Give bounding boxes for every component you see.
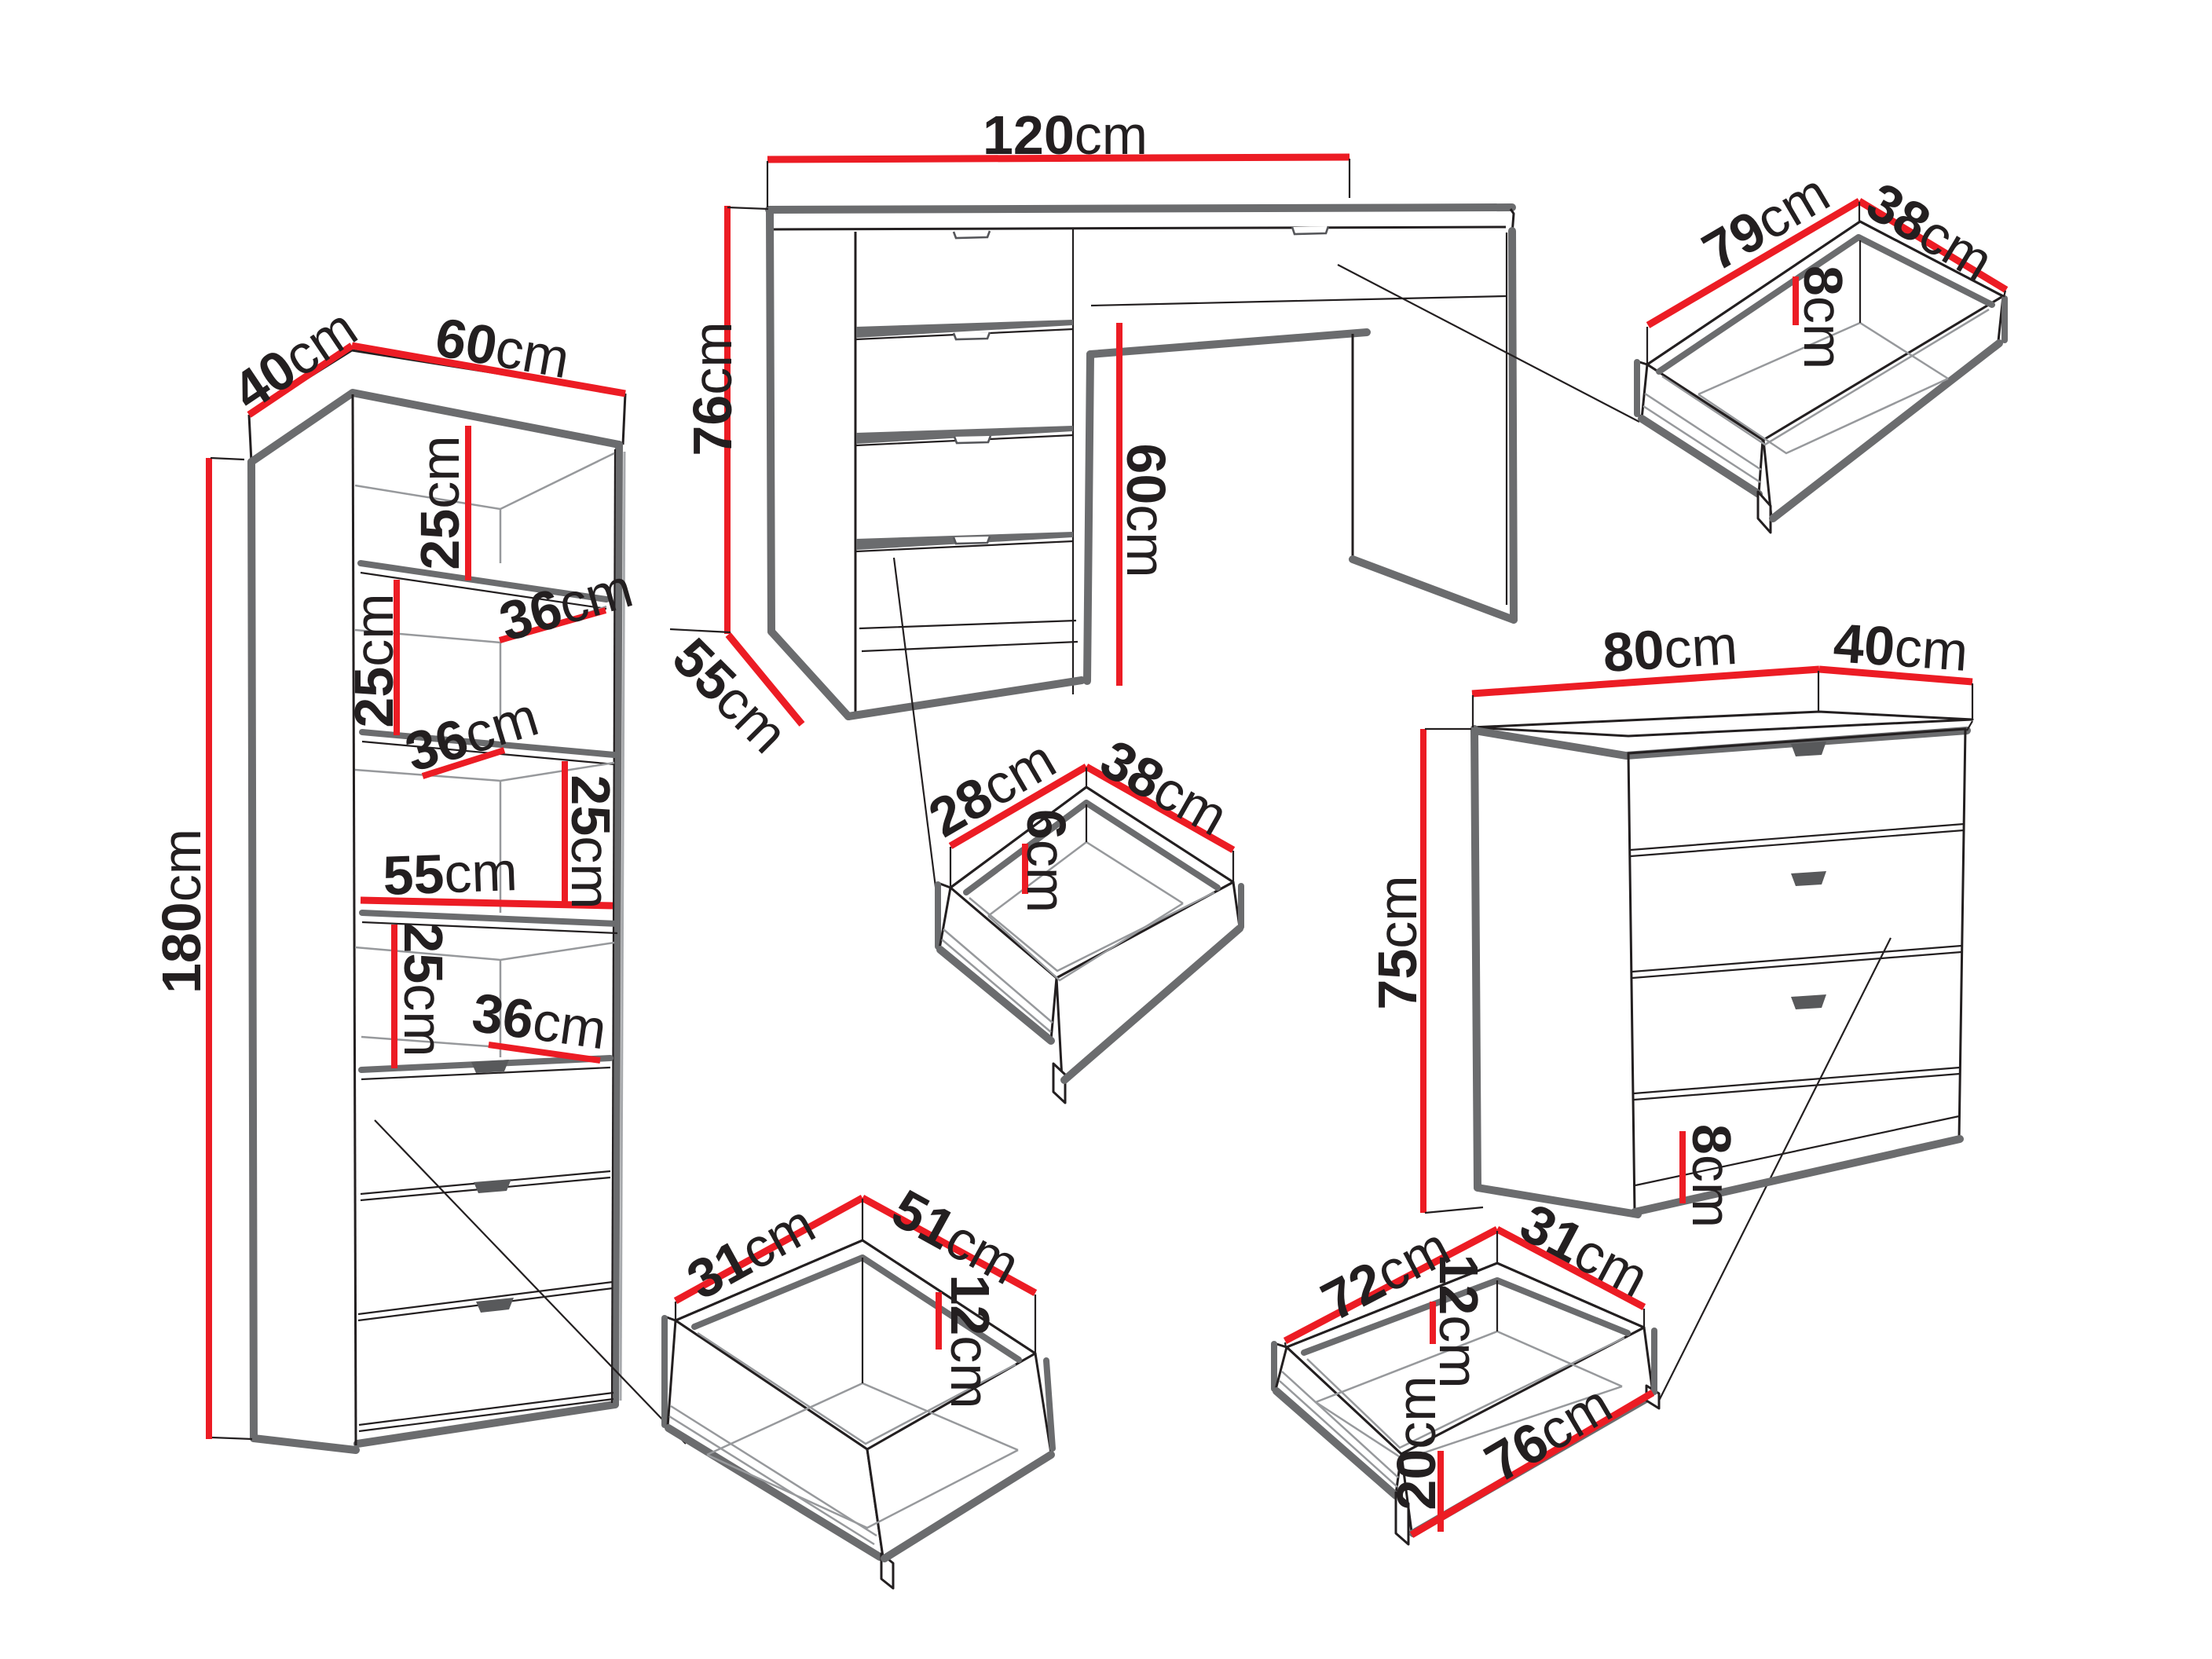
svg-text:75cm: 75cm bbox=[1367, 875, 1428, 1009]
svg-text:180cm: 180cm bbox=[151, 829, 212, 994]
svg-text:25cm: 25cm bbox=[409, 435, 471, 569]
svg-text:25cm: 25cm bbox=[343, 593, 405, 727]
svg-text:25cm: 25cm bbox=[560, 775, 621, 909]
svg-text:76cm: 76cm bbox=[682, 321, 743, 456]
svg-text:55cm: 55cm bbox=[382, 840, 518, 906]
svg-text:12cm: 12cm bbox=[1428, 1254, 1489, 1388]
svg-text:25cm: 25cm bbox=[393, 922, 454, 1057]
svg-text:8cm: 8cm bbox=[1793, 266, 1854, 369]
svg-text:120cm: 120cm bbox=[983, 104, 1148, 166]
svg-text:60cm: 60cm bbox=[1115, 443, 1177, 577]
svg-text:8cm: 8cm bbox=[1681, 1124, 1742, 1228]
svg-text:20cm: 20cm bbox=[1386, 1375, 1447, 1510]
svg-text:80cm: 80cm bbox=[1601, 614, 1739, 683]
svg-text:6cm: 6cm bbox=[1016, 809, 1077, 913]
svg-text:40cm: 40cm bbox=[1832, 612, 1970, 683]
svg-text:12cm: 12cm bbox=[939, 1274, 1001, 1408]
